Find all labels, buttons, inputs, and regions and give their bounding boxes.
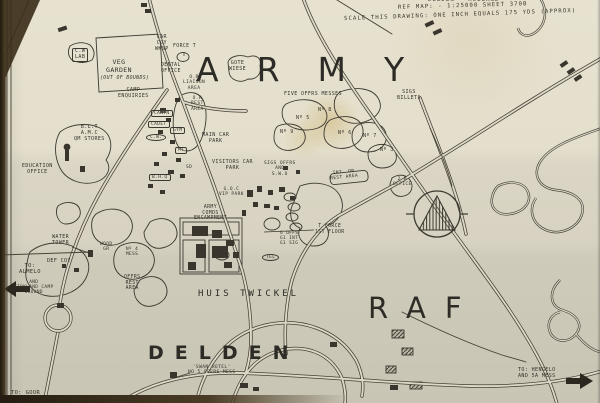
map-label: FIVE OFFRS MESSES: [284, 92, 342, 98]
photo-edge: [0, 0, 7, 403]
map-label: O.R LIAISON AREA: [183, 75, 205, 91]
map-label: EDUCATION OFFICE: [22, 164, 53, 176]
map-label: OFFRS REST AREA: [124, 275, 140, 292]
map-label: SIGS OFFRS AND S.W.O: [264, 161, 296, 177]
map-label: Nº 8: [318, 108, 332, 114]
map-label: Nº 4 MESS: [126, 247, 138, 257]
map-label: G OFFS G1 INT G1 SIG: [280, 231, 298, 247]
map-label: WOOD GR: [100, 242, 112, 253]
map-label: Nº 9: [280, 130, 294, 136]
map-label: 'SWAN HOTEL' NO 5 OFFRS MESS: [188, 365, 236, 376]
map-label: Nº 6: [338, 131, 352, 137]
map-label: DENTAL OFFICE: [161, 63, 181, 74]
map-label: AND KIRKLAND CAMP GROUND: [14, 280, 54, 296]
map-label: O.R REST AREA: [191, 96, 204, 112]
map-label: Nº 3: [380, 148, 394, 154]
map-labels-layer: C.W LABVEG GARDEN(OUT OF BOUNDS)CAR COY …: [0, 0, 600, 403]
map-label: MT: [175, 147, 187, 154]
map-label: B.H.Q: [149, 174, 171, 181]
map-label: 2 B OFFICE: [393, 177, 412, 188]
map-label: FORCE T: [173, 44, 196, 50]
map-label: DEF COY: [47, 259, 71, 265]
map-label: CANTN: [151, 110, 173, 117]
map-label: ARMY COMDS ENCAMPMENT: [194, 205, 227, 222]
map-label: (OUT OF BOUNDS): [100, 76, 149, 82]
map-label: WATER TOWER: [52, 235, 69, 247]
map-label: GOTE WIESE: [229, 61, 246, 73]
map-label: GYM: [170, 127, 185, 134]
map-label: C.W.: [146, 134, 166, 141]
photo-edge: [0, 395, 348, 403]
map-label: SIGS BILLETS: [397, 90, 421, 102]
map-label: CAR COY WKSP: [155, 35, 169, 53]
map-label: TO: HENGELO AND 5A MESS: [518, 368, 556, 380]
map-label: INT. OR REST AREA: [330, 169, 359, 182]
map-label: B.L.T A.M.C QM STORES: [74, 125, 105, 143]
map-label: CADET: [148, 121, 170, 128]
map-label: Nº 5: [296, 116, 310, 122]
map-photo: DELDEN - HOLLAND REF MAP: - 1:25000 SHEE…: [0, 0, 600, 403]
map-label: TO: ALMELO: [19, 263, 41, 276]
map-label: T FORCE 1ST FLOOR: [315, 224, 345, 235]
map-label: TEL: [262, 254, 279, 261]
map-label: CAMP ENQUIRIES: [118, 88, 149, 100]
map-label: G.O.C VIP PARK: [219, 187, 244, 198]
map-label: SD: [186, 165, 192, 170]
map-label: MAIN CAR PARK: [202, 133, 229, 145]
map-label: VEG GARDEN: [106, 59, 132, 74]
map-label: Nº 7: [363, 134, 377, 140]
map-label: VISITORS CAR PARK: [212, 160, 253, 172]
map-label: C.W LAB: [72, 48, 88, 62]
